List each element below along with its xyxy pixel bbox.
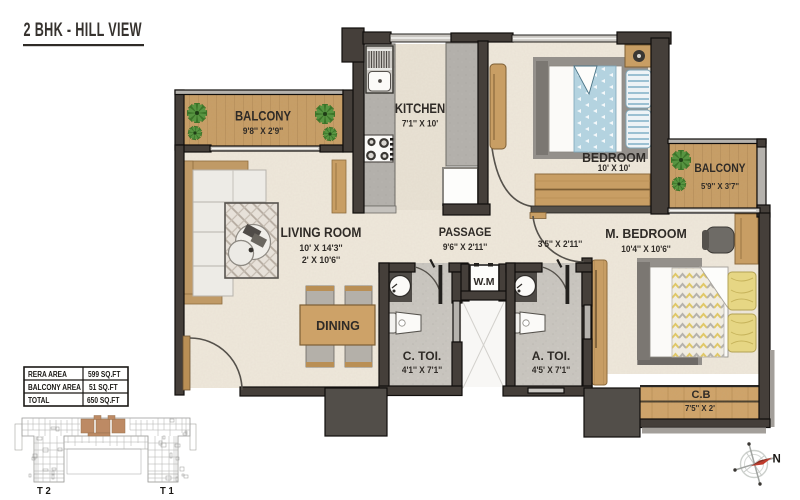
svg-text:W.M: W.M (474, 276, 495, 288)
svg-text:10'4'' X 10'6'': 10'4'' X 10'6'' (621, 244, 670, 254)
svg-text:650 SQ.FT: 650 SQ.FT (87, 395, 120, 405)
svg-text:A. TOI.: A. TOI. (532, 349, 570, 363)
svg-text:KITCHEN: KITCHEN (395, 101, 445, 116)
svg-text:LIVING ROOM: LIVING ROOM (281, 224, 362, 240)
svg-text:PASSAGE: PASSAGE (439, 227, 492, 240)
svg-text:BALCONY: BALCONY (694, 163, 746, 176)
svg-text:599 SQ.FT: 599 SQ.FT (88, 369, 121, 379)
svg-text:2 BHK - HILL VIEW: 2 BHK - HILL VIEW (24, 20, 143, 41)
svg-text:BALCONY AREA: BALCONY AREA (28, 382, 81, 392)
svg-text:3'5'' X 2'11'': 3'5'' X 2'11'' (538, 239, 582, 249)
svg-text:9'6'' X 2'11'': 9'6'' X 2'11'' (443, 242, 487, 252)
svg-text:7'1'' X 10': 7'1'' X 10' (402, 118, 438, 128)
svg-text:T 1: T 1 (160, 486, 174, 497)
svg-text:N: N (773, 454, 781, 466)
svg-text:4'5' X 7'1'': 4'5' X 7'1'' (532, 365, 570, 375)
svg-text:DINING: DINING (316, 319, 360, 333)
svg-text:BALCONY: BALCONY (235, 109, 292, 124)
svg-text:4'1'' X 7'1'': 4'1'' X 7'1'' (402, 365, 442, 375)
svg-text:51 SQ.FT: 51 SQ.FT (89, 382, 118, 392)
svg-text:TOTAL: TOTAL (28, 395, 50, 405)
svg-text:2' X 10'6'': 2' X 10'6'' (302, 255, 340, 265)
svg-text:7'5'' X 2': 7'5'' X 2' (685, 404, 715, 413)
svg-text:C. TOI.: C. TOI. (403, 349, 441, 363)
svg-text:9'8'' X 2'9'': 9'8'' X 2'9'' (243, 126, 283, 136)
svg-text:RERA AREA: RERA AREA (28, 369, 67, 379)
svg-text:C.B: C.B (692, 389, 711, 401)
svg-text:M. BEDROOM: M. BEDROOM (605, 227, 686, 241)
svg-text:10' X 14'3'': 10' X 14'3'' (299, 243, 342, 253)
svg-text:5'9'' X 3'7'': 5'9'' X 3'7'' (701, 182, 739, 191)
svg-text:T 2: T 2 (37, 486, 51, 497)
svg-text:10' X 10': 10' X 10' (598, 163, 630, 173)
